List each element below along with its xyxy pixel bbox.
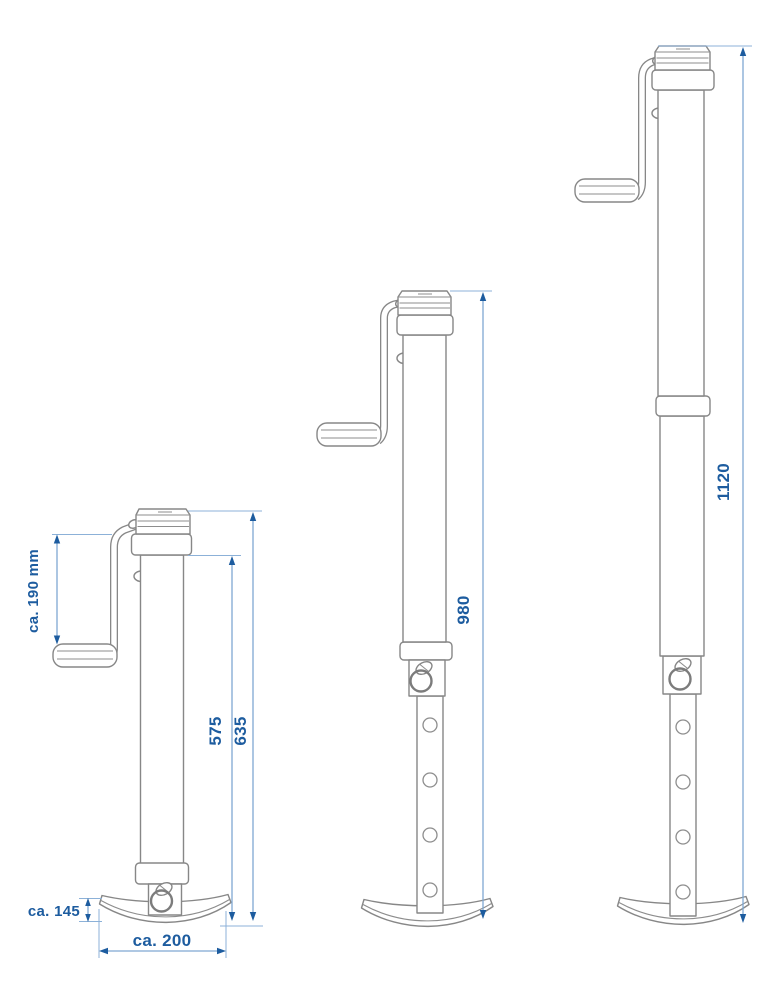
total-height-small-label: 635 — [231, 716, 250, 745]
jack-small-group — [53, 509, 231, 922]
bottom-collar-medium — [400, 642, 452, 660]
crank-grip-medium — [317, 423, 381, 446]
foot-height-label: ca. 145 — [28, 903, 80, 920]
bottom-collar-small — [136, 863, 189, 884]
joint-collar-large — [656, 396, 710, 416]
lower-tube-large — [660, 416, 704, 656]
total-height-medium-label: 980 — [454, 595, 473, 624]
outer-tube-medium — [403, 335, 446, 642]
grease-nipple-large — [652, 108, 658, 119]
foot-width-label: ca. 200 — [133, 931, 192, 950]
inner-height-small-label: 575 — [206, 716, 225, 745]
gear-head-small — [132, 509, 192, 555]
grease-nipple-medium — [397, 353, 403, 364]
dimension-foot-height: ca. 145 — [28, 898, 102, 922]
crank-offset-label: ca. 190 mm — [25, 549, 42, 633]
crank-handle-medium — [317, 297, 408, 446]
dimension-total-height-small: 635 — [188, 511, 263, 926]
crank-grip-large — [575, 179, 639, 202]
outer-tube-small — [141, 555, 184, 865]
gear-head-large — [652, 46, 714, 90]
crank-handle-small — [53, 518, 141, 667]
grease-nipple-small — [134, 571, 140, 582]
outer-tube-large — [658, 90, 704, 396]
crank-grip-small — [53, 644, 117, 667]
diagram-canvas: ca. 190 mm 575 635 ca. 145 ca. 200 — [0, 0, 781, 1000]
gear-head-medium — [397, 291, 453, 335]
dimension-crank-offset: ca. 190 mm — [25, 535, 112, 645]
dimension-total-height-medium: 980 — [450, 291, 492, 919]
crank-handle-large — [575, 54, 665, 202]
jack-diagram: ca. 190 mm 575 635 ca. 145 ca. 200 — [0, 0, 781, 1000]
total-height-large-label: 1120 — [714, 463, 733, 501]
